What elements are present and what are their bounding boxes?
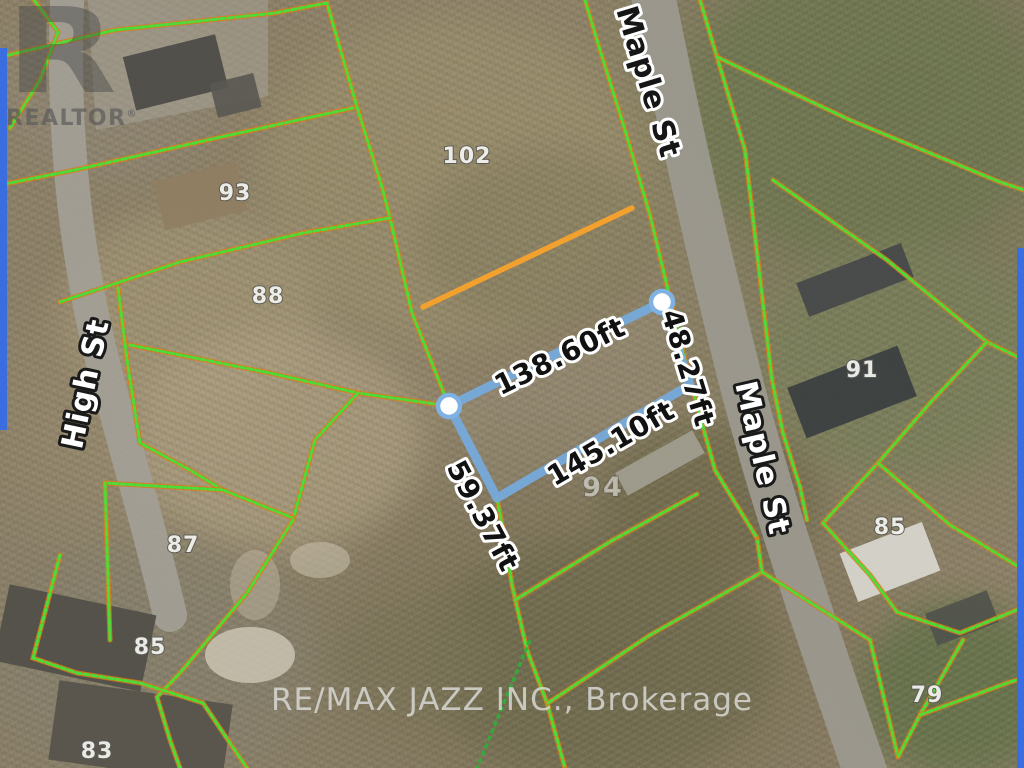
building-roof xyxy=(925,590,999,645)
aerial-map-overlay: 138.60ft 48.27ft 145.10ft 59.37ft Maple … xyxy=(0,0,1024,768)
gravel-patch xyxy=(230,550,280,620)
lot-number-83: 83 xyxy=(81,739,114,764)
barn-roof xyxy=(796,243,913,317)
lot-number-85-west: 85 xyxy=(134,635,167,660)
lot-number-85-east: 85 xyxy=(874,515,907,540)
map-canvas: 138.60ft 48.27ft 145.10ft 59.37ft Maple … xyxy=(0,0,1024,768)
lot-number-87: 87 xyxy=(167,533,200,558)
lot-number-102: 102 xyxy=(443,144,492,169)
lot-number-88: 88 xyxy=(252,284,285,309)
street-label-maple-st-right: Maple St xyxy=(727,378,796,538)
lot-number-79: 79 xyxy=(911,683,944,708)
lot-number-91: 91 xyxy=(846,358,879,383)
building-roof xyxy=(48,680,232,768)
lot-number-93: 93 xyxy=(219,181,252,206)
highlighted-boundary-segment xyxy=(423,208,632,307)
map-edge-bar-right xyxy=(1017,248,1024,768)
measurement-handle-left[interactable] xyxy=(438,395,460,417)
map-edge-bar-left xyxy=(0,48,7,430)
parcel-boundary-casing xyxy=(293,393,358,520)
gravel-patch xyxy=(290,542,350,578)
parcel-boundary-casing xyxy=(717,57,1024,190)
lot-number-94: 94 xyxy=(582,472,624,503)
parcel-boundary-line xyxy=(293,393,358,520)
gravel-patch xyxy=(205,627,295,683)
parcel-boundary-casing xyxy=(60,218,390,302)
parcel-boundary-line xyxy=(60,218,390,302)
parcel-boundary-line-dark xyxy=(477,640,530,768)
